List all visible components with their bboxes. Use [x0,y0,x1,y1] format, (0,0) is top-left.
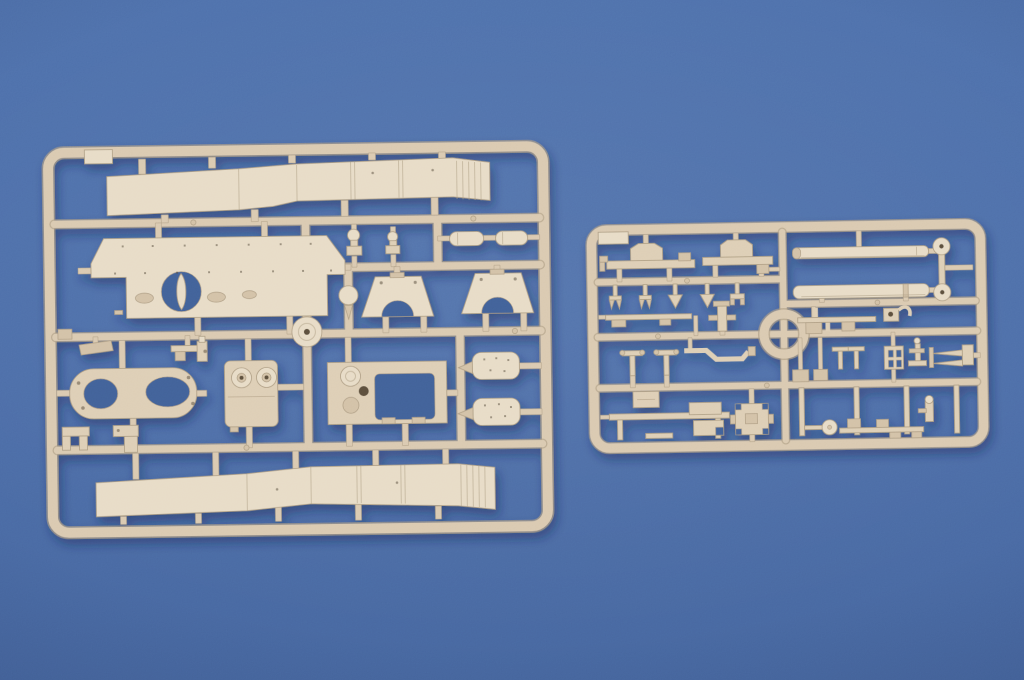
photo-scene: Two tan injection-molded plastic model-k… [0,0,1024,680]
sprue-photo: Two tan injection-molded plastic model-k… [0,0,1024,680]
film-grain-overlay [0,0,1024,680]
